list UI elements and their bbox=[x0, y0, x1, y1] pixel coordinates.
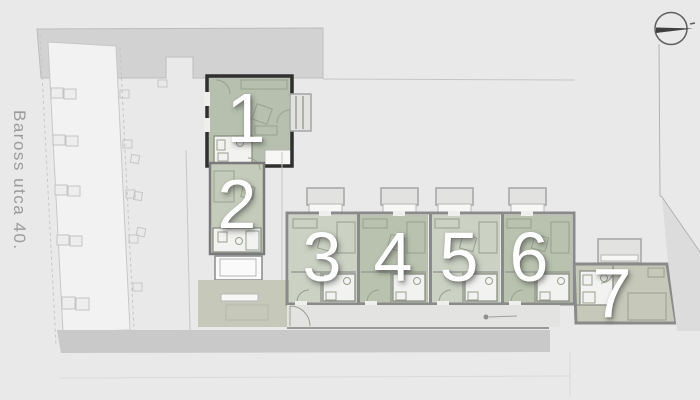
unit-1-number: 1 bbox=[216, 78, 276, 158]
unit-7-number: 7 bbox=[582, 253, 642, 333]
unit-2-number: 2 bbox=[207, 164, 267, 244]
site-plan-drawing bbox=[0, 0, 700, 400]
storage-structure bbox=[215, 256, 262, 280]
unit-5-number: 5 bbox=[429, 217, 489, 297]
unit-6-number: 6 bbox=[499, 217, 559, 297]
street-name-label: Baross utca 40. bbox=[9, 110, 29, 251]
unit-4-number: 4 bbox=[363, 217, 423, 297]
site-plan-canvas: Baross utca 40. 1 2 3 4 5 6 7 bbox=[0, 0, 700, 400]
front-walkway bbox=[287, 305, 560, 328]
unit-1-porch bbox=[290, 94, 311, 131]
unit-3-number: 3 bbox=[292, 217, 352, 297]
